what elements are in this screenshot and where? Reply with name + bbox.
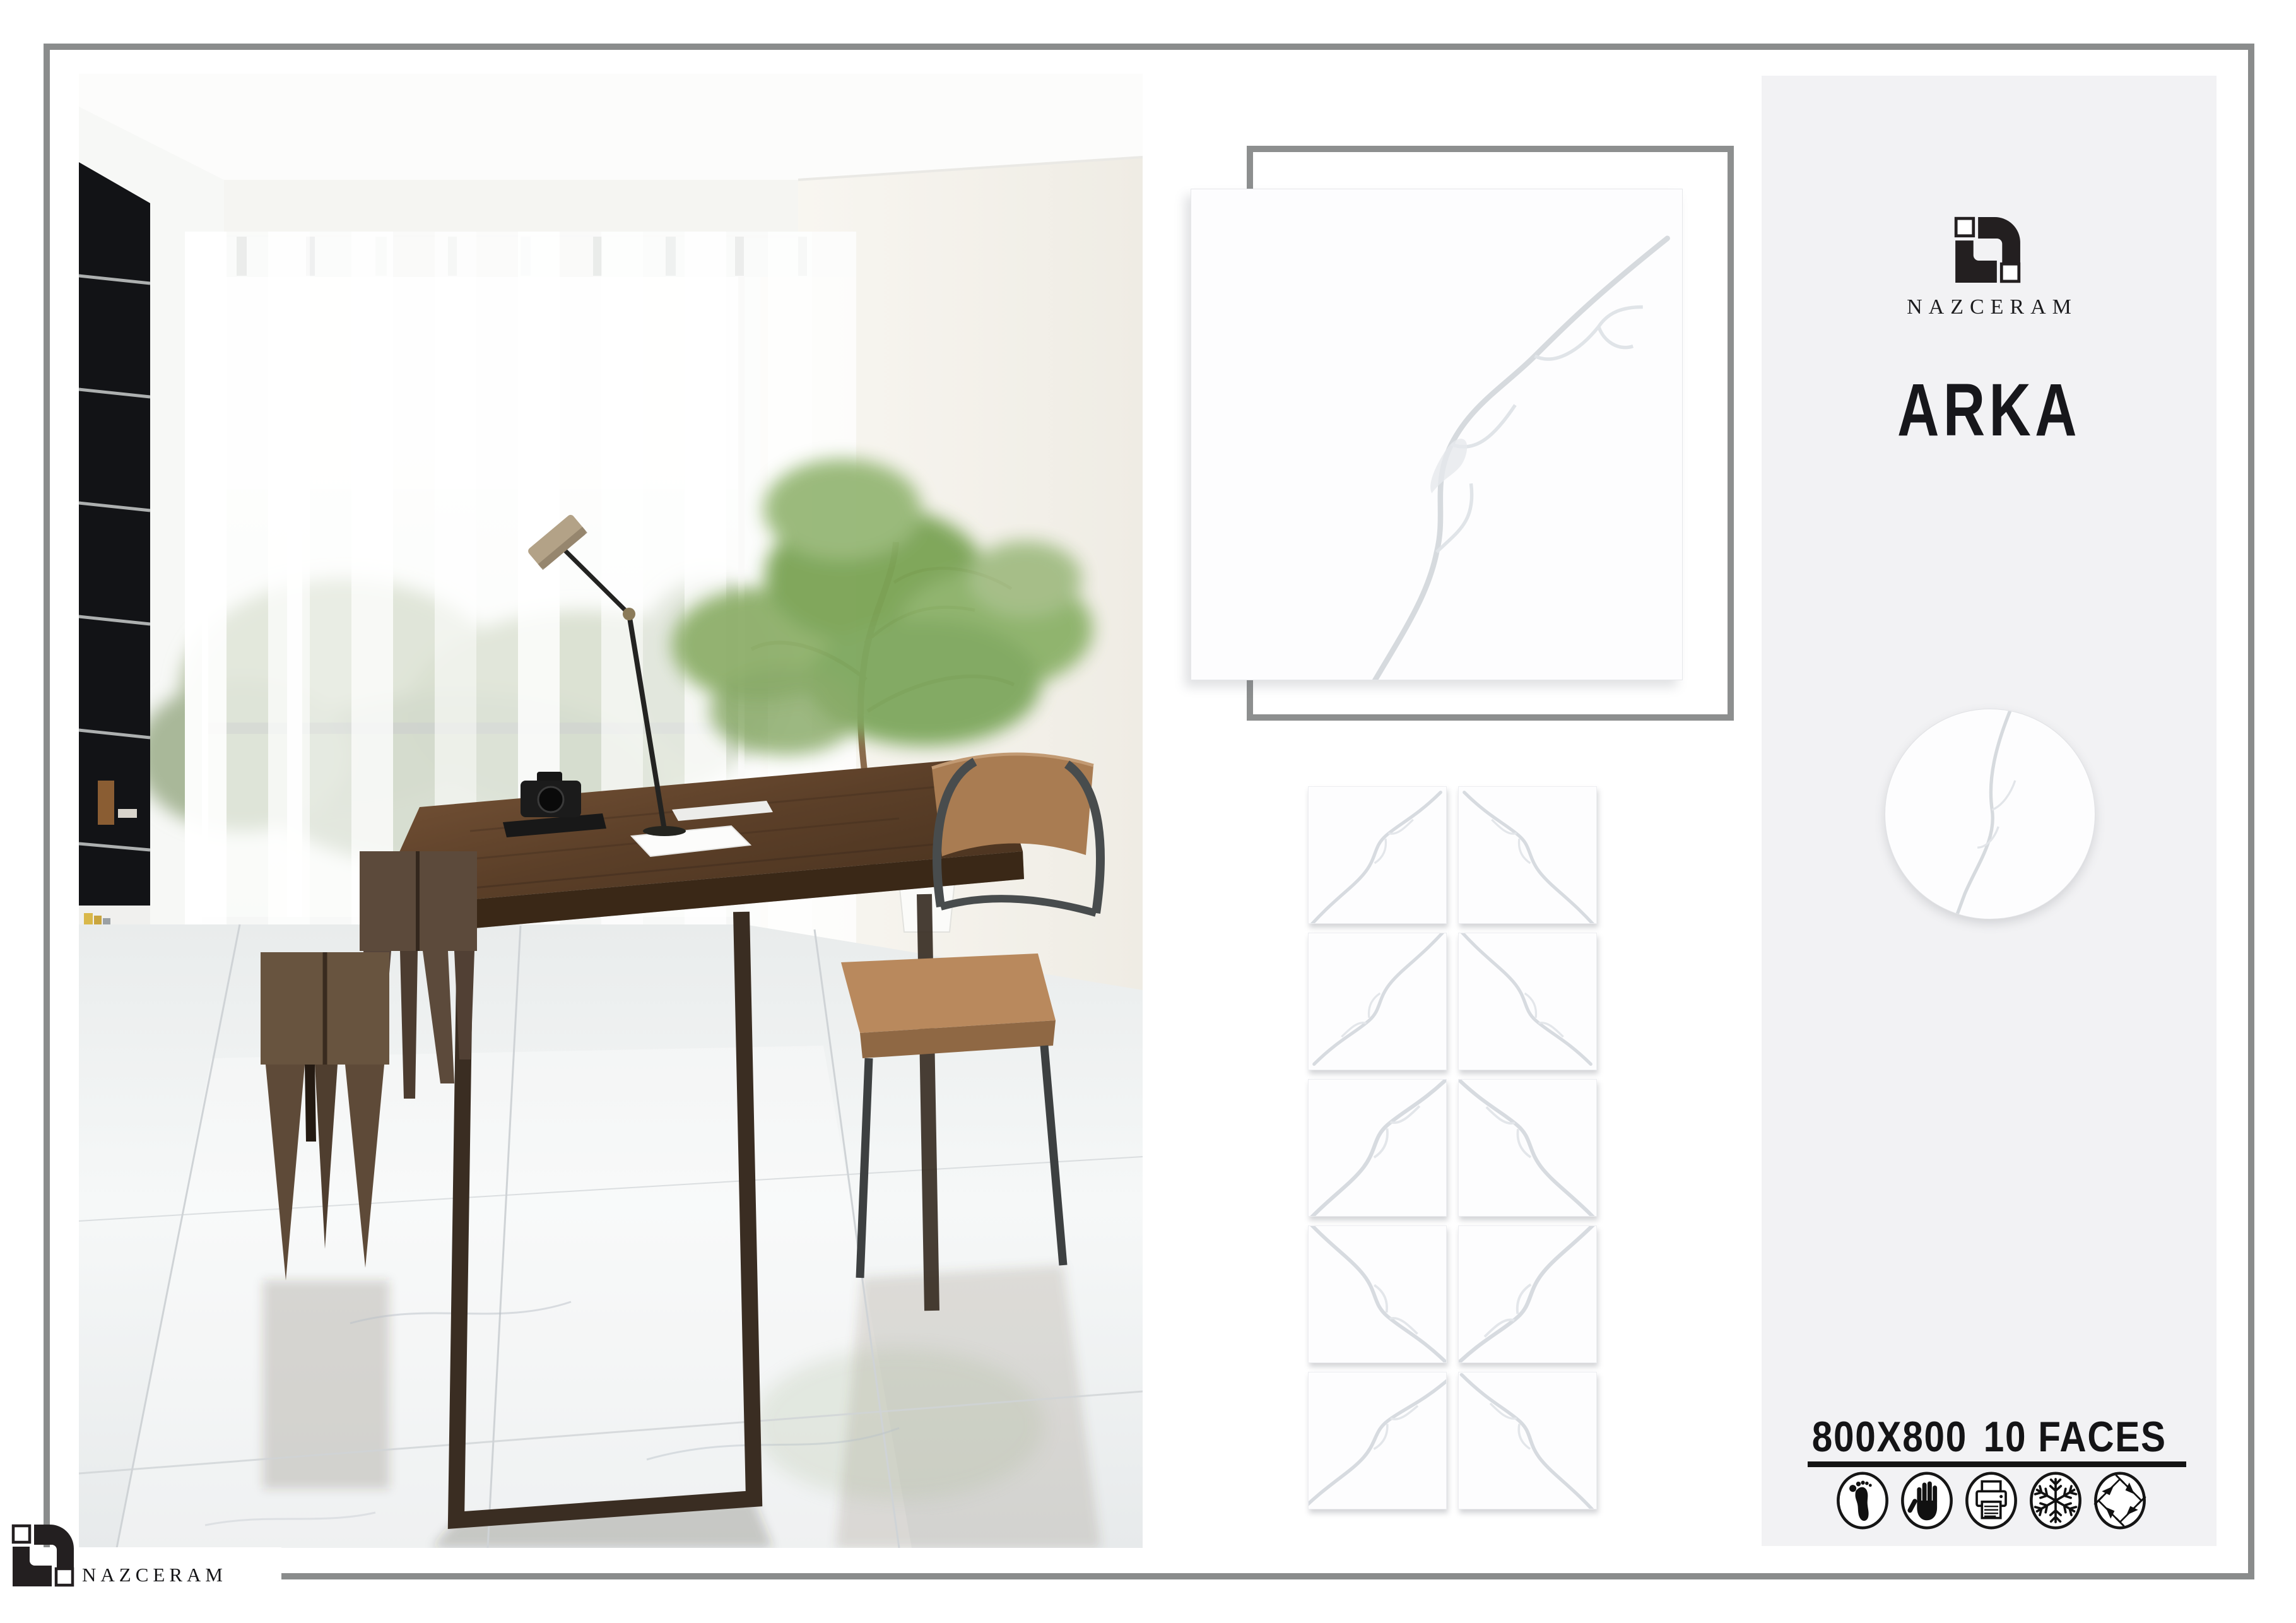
catalog-page: NAZCERAM ARKA 800X80010 FACES xyxy=(0,0,2296,1623)
brand-logo-icon xyxy=(11,1524,74,1587)
tile-face xyxy=(1308,1225,1447,1363)
spec-text: 800X80010 FACES xyxy=(1762,1412,2217,1461)
tile-face xyxy=(1458,786,1597,924)
footer-brand-name: NAZCERAM xyxy=(82,1564,227,1586)
shade-variation-icon xyxy=(2091,1472,2149,1530)
marble-vein-graphic xyxy=(1885,709,2095,919)
info-panel: NAZCERAM ARKA 800X80010 FACES xyxy=(1762,76,2217,1546)
foot-traffic-icon xyxy=(1834,1472,1892,1530)
product-title: ARKA xyxy=(1762,367,2217,453)
tile-face xyxy=(1458,933,1597,1070)
room-scene-illustration xyxy=(79,74,1143,1548)
digital-print-icon xyxy=(1962,1472,2020,1530)
spec-underline xyxy=(1808,1461,2186,1467)
tile-face xyxy=(1458,1079,1597,1217)
tile-face xyxy=(1308,1372,1447,1509)
tile-face xyxy=(1308,786,1447,924)
brand-logo-icon xyxy=(1954,216,2021,284)
tile-sample-circle xyxy=(1885,709,2095,919)
bookshelf xyxy=(79,162,150,988)
hand-icon xyxy=(1898,1472,1956,1530)
faces-count: 10 FACES xyxy=(1983,1413,2166,1461)
tile-face xyxy=(1308,933,1447,1070)
tile-size: 800X800 xyxy=(1811,1413,1967,1461)
feature-icons-row xyxy=(1834,1472,2149,1530)
room-photo xyxy=(79,74,1143,1548)
tile-face xyxy=(1458,1372,1597,1509)
tile-faces-grid xyxy=(1308,786,1597,1509)
marble-vein-graphic xyxy=(1191,189,1682,680)
tile-sample-large xyxy=(1191,189,1683,680)
brand-name: NAZCERAM xyxy=(1762,295,2217,319)
tile-face xyxy=(1308,1079,1447,1217)
tile-face xyxy=(1458,1225,1597,1363)
frost-resistant-icon xyxy=(2027,1472,2085,1530)
